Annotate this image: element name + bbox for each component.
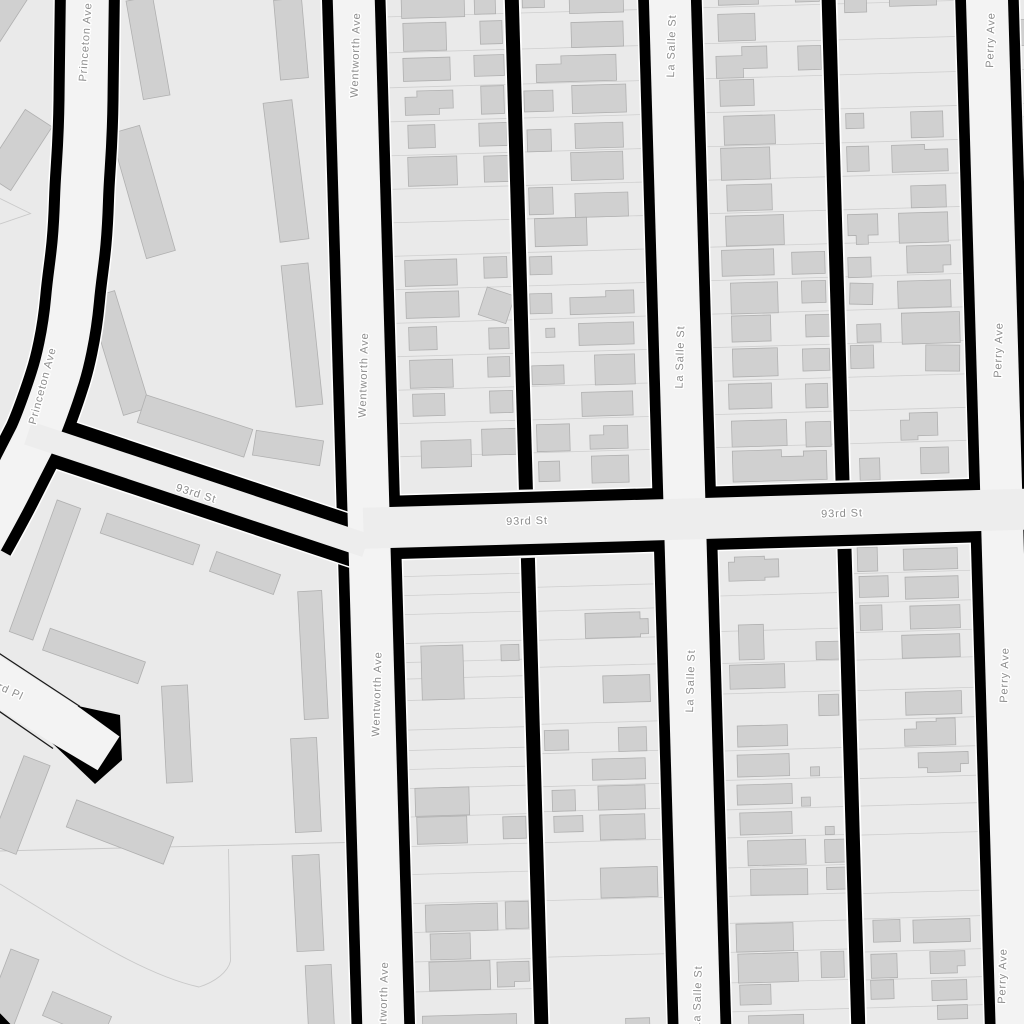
svg-text:La Salle St: La Salle St: [665, 14, 679, 77]
svg-text:Perry Ave: Perry Ave: [996, 948, 1010, 1004]
svg-text:Wentworth Ave: Wentworth Ave: [349, 12, 363, 98]
svg-text:93rd St: 93rd St: [821, 507, 863, 520]
svg-text:La Salle St: La Salle St: [691, 965, 705, 1024]
svg-text:La Salle St: La Salle St: [674, 325, 688, 388]
svg-text:Perry Ave: Perry Ave: [992, 322, 1006, 378]
svg-text:Wentworth Ave: Wentworth Ave: [370, 651, 384, 737]
svg-text:La Salle St: La Salle St: [684, 649, 698, 712]
svg-text:Wentworth Ave: Wentworth Ave: [377, 961, 391, 1024]
svg-text:93rd St: 93rd St: [506, 515, 548, 528]
svg-text:Wentworth Ave: Wentworth Ave: [357, 332, 371, 418]
svg-text:Perry Ave: Perry Ave: [984, 12, 998, 68]
svg-text:Perry Ave: Perry Ave: [998, 647, 1012, 703]
